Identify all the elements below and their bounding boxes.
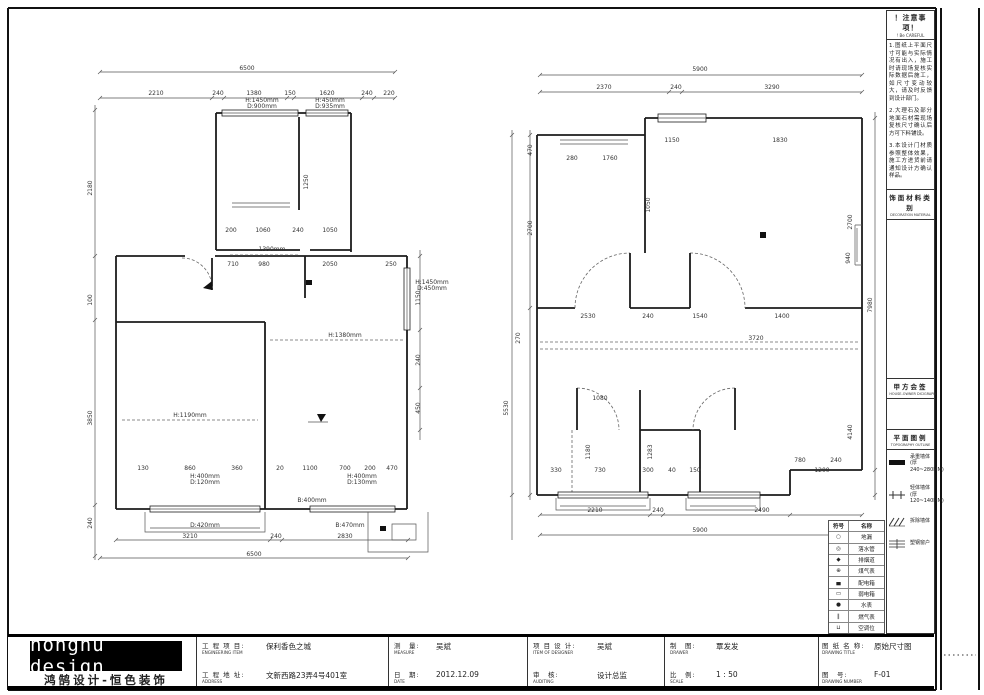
material-title-zh: 饰面材料类别 xyxy=(887,192,934,212)
floor-plan-right: 5900237024032902801760115018302700105025… xyxy=(503,66,877,540)
symbol-name: 地漏 xyxy=(849,533,884,541)
divider xyxy=(664,637,665,686)
left-balcony xyxy=(145,512,428,552)
svg-text:200: 200 xyxy=(225,227,237,234)
legend-item-light-wall: 轻体墙体(厚120~140MM) xyxy=(889,485,932,505)
drawing-title-row: 图 纸 名 称: DRAWING TITLE 原始尺寸图 xyxy=(822,640,932,655)
svg-text:300: 300 xyxy=(642,467,654,474)
svg-text:D:130mm: D:130mm xyxy=(347,479,377,486)
svg-text:D:120mm: D:120mm xyxy=(190,479,220,486)
notes-title-zh: ！注意事项！ xyxy=(887,13,934,33)
svg-text:5900: 5900 xyxy=(692,66,707,73)
svg-text:940: 940 xyxy=(845,252,852,264)
designer-row: 项 目 设 计: ITEM OF DESIGNER 吴斌 xyxy=(533,640,661,655)
note-3: 3.本设计门材质参照整体效果，施工方进货前请通知设计方确认样品。 xyxy=(889,143,932,181)
project-row: 工 程 项 目: ENGINEERING ITEM 保利香色之城 xyxy=(202,640,386,655)
svg-text:1540: 1540 xyxy=(692,313,707,320)
designer-value: 吴斌 xyxy=(597,640,612,652)
left-elevation-marker xyxy=(308,414,328,422)
svg-text:200: 200 xyxy=(364,465,376,472)
measure-date-cell: 测 量: MEASURE 吴斌 日 期: DATE 2012.12.09 xyxy=(394,640,524,684)
left-entry-door xyxy=(182,258,212,290)
symbol-table-row: ⊕煤气表 xyxy=(829,565,884,576)
symbol-name: 弱电箱 xyxy=(849,590,884,598)
svg-text:5530: 5530 xyxy=(503,400,510,415)
title-bar: honghu design 鸿鹄设计-恒色装饰 工 程 项 目: ENGINEE… xyxy=(8,634,934,690)
svg-text:D:450mm: D:450mm xyxy=(417,285,447,292)
symbol-name: 燃气表 xyxy=(849,613,884,621)
svg-text:7980: 7980 xyxy=(867,297,874,312)
svg-text:2700: 2700 xyxy=(847,214,854,229)
address-label: 工 程 地 址: ADDRESS xyxy=(202,669,266,684)
legend-item-bearing-wall: 承重墙体(厚240~280MM) xyxy=(889,454,932,474)
symbol-glyph: ⊔ xyxy=(829,623,849,633)
legend-label: 塑钢窗户 xyxy=(910,540,930,547)
svg-text:2700: 2700 xyxy=(527,220,534,235)
symbol-table-row: ◎落水管 xyxy=(829,543,884,554)
svg-text:3850: 3850 xyxy=(87,410,94,425)
drawing-number-label: 图 号: DRAWING NUMBER xyxy=(822,669,874,684)
svg-text:1200: 1200 xyxy=(814,467,829,474)
legend-item-window: 塑钢窗户 xyxy=(889,539,932,549)
left-dimension-labels: 6500221024013801501620240220H:1450mmD:90… xyxy=(87,65,449,558)
svg-text:220: 220 xyxy=(383,90,395,97)
svg-text:D:935mm: D:935mm xyxy=(315,103,345,110)
svg-text:330: 330 xyxy=(550,467,562,474)
svg-text:470: 470 xyxy=(527,144,534,156)
divider xyxy=(196,637,197,686)
material-blank-area xyxy=(887,220,934,378)
symbol-name: 煤气表 xyxy=(849,567,884,575)
audit-value: 设计总监 xyxy=(597,669,627,681)
svg-text:150: 150 xyxy=(689,467,701,474)
symbol-glyph: ∥ xyxy=(829,611,849,621)
svg-text:1150: 1150 xyxy=(664,137,679,144)
drawing-title-label: 图 纸 名 称: DRAWING TITLE xyxy=(822,640,874,655)
svg-text:980: 980 xyxy=(258,261,270,268)
svg-text:710: 710 xyxy=(227,261,239,268)
svg-text:B:400mm: B:400mm xyxy=(297,497,326,504)
symbol-glyph: ▄ xyxy=(829,577,849,587)
svg-text:270: 270 xyxy=(515,332,522,344)
svg-text:2830: 2830 xyxy=(337,533,352,540)
divider xyxy=(388,637,389,686)
symbol-table-row: ▭弱电箱 xyxy=(829,588,884,599)
company-name-cn: 鸿鹄设计-恒色装饰 xyxy=(22,672,190,688)
svg-text:860: 860 xyxy=(184,465,196,472)
svg-text:1060: 1060 xyxy=(255,227,270,234)
notes-title-en: ! Be CAREFUL xyxy=(887,33,934,38)
svg-text:150: 150 xyxy=(284,90,296,97)
sign-section-header: 甲方会签 HOUSE-OWNER DICIGRAPH xyxy=(887,378,934,399)
symbol-glyph: ● xyxy=(829,600,849,610)
scale-label: 比 例: SCALE xyxy=(670,669,716,684)
sign-title-zh: 甲方会签 xyxy=(887,381,934,391)
divider xyxy=(527,637,528,686)
svg-text:240: 240 xyxy=(292,227,304,234)
address-value: 文新西路23弄4号401室 xyxy=(266,669,347,681)
symbol-table-row: ◆排烟道 xyxy=(829,554,884,565)
drawing-sheet: { "titlebar": { "logo_en": "honghu desig… xyxy=(0,0,984,695)
project-cell: 工 程 项 目: ENGINEERING ITEM 保利香色之城 工 程 地 址… xyxy=(202,640,386,684)
svg-text:240: 240 xyxy=(87,517,94,529)
designer-audit-cell: 项 目 设 计: ITEM OF DESIGNER 吴斌 审 核: AUDITI… xyxy=(533,640,661,684)
svg-text:2210: 2210 xyxy=(587,507,602,514)
svg-text:6500: 6500 xyxy=(239,65,254,72)
symbol-glyph: ○ xyxy=(829,532,849,542)
scale-value: 1 : 50 xyxy=(716,669,738,679)
svg-text:2050: 2050 xyxy=(322,261,337,268)
address-row: 工 程 地 址: ADDRESS 文新西路23弄4号401室 xyxy=(202,669,386,684)
demolish-wall-icon xyxy=(889,517,907,527)
drawer-scale-cell: 制 图: DRAWER 覃发发 比 例: SCALE 1 : 50 xyxy=(670,640,812,684)
symbol-glyph: ◎ xyxy=(829,544,849,554)
svg-text:780: 780 xyxy=(794,457,806,464)
svg-text:1760: 1760 xyxy=(602,155,617,162)
light-wall-icon xyxy=(889,490,907,500)
svg-text:240: 240 xyxy=(270,533,282,540)
project-label: 工 程 项 目: ENGINEERING ITEM xyxy=(202,640,266,655)
scale-row: 比 例: SCALE 1 : 50 xyxy=(670,669,812,684)
notes-list: 1.图纸上平面尺寸可能与实际情况有出入，施工时请现场复核实际数据后施工，如尺寸变… xyxy=(887,40,934,189)
window-icon xyxy=(889,539,907,549)
svg-text:20: 20 xyxy=(276,465,284,472)
svg-text:D:900mm: D:900mm xyxy=(247,103,277,110)
symbol-name: 水表 xyxy=(849,601,884,609)
audit-row: 审 核: AUDITING 设计总监 xyxy=(533,669,661,684)
svg-text:1050: 1050 xyxy=(645,197,652,212)
legend-section-header: 平面图例 TOPOGRAPHY OUTLINE xyxy=(887,429,934,450)
svg-text:1400: 1400 xyxy=(774,313,789,320)
svg-text:1283: 1283 xyxy=(647,444,654,459)
svg-text:1050: 1050 xyxy=(322,227,337,234)
svg-text:40: 40 xyxy=(668,467,676,474)
svg-text:1100: 1100 xyxy=(302,465,317,472)
date-row: 日 期: DATE 2012.12.09 xyxy=(394,669,524,684)
symbol-glyph: ◆ xyxy=(829,555,849,565)
symbol-table-row: ∥燃气表 xyxy=(829,610,884,621)
measure-value: 吴斌 xyxy=(436,640,451,652)
left-main-walls xyxy=(116,256,410,531)
sign-title-en: HOUSE-OWNER DICIGRAPH xyxy=(889,391,931,396)
symbol-glyph: ⊕ xyxy=(829,566,849,576)
svg-text:240: 240 xyxy=(670,84,682,91)
symbol-name: 落水管 xyxy=(849,545,884,553)
svg-text:D:420mm: D:420mm xyxy=(190,522,220,529)
svg-text:1150: 1150 xyxy=(415,290,422,305)
svg-text:130: 130 xyxy=(137,465,149,472)
drawing-number-value: F-01 xyxy=(874,669,891,679)
svg-text:100: 100 xyxy=(87,294,94,306)
legend-title-en: TOPOGRAPHY OUTLINE xyxy=(889,442,931,447)
svg-text:2210: 2210 xyxy=(148,90,163,97)
drawing-title-value: 原始尺寸图 xyxy=(874,640,912,652)
svg-text:6500: 6500 xyxy=(246,551,261,558)
svg-text:1620: 1620 xyxy=(319,90,334,97)
material-title-en: DECORATION MATERIAL xyxy=(889,212,931,217)
bearing-wall-icon xyxy=(889,458,907,468)
svg-text:1180: 1180 xyxy=(585,444,592,459)
drawer-value: 覃发发 xyxy=(716,640,739,652)
svg-text:2490: 2490 xyxy=(754,507,769,514)
symbol-table-header: 符号名称 xyxy=(829,521,884,531)
measure-label: 测 量: MEASURE xyxy=(394,640,436,655)
svg-text:1380: 1380 xyxy=(246,90,261,97)
left-dimension-lines xyxy=(93,70,422,560)
svg-text:250: 250 xyxy=(385,261,397,268)
symbol-table: 符号名称○地漏◎落水管◆排烟道⊕煤气表▄配电箱▭弱电箱●水表∥燃气表⊔空调位 xyxy=(828,520,885,634)
drawer-row: 制 图: DRAWER 覃发发 xyxy=(670,640,812,655)
project-value: 保利香色之城 xyxy=(266,640,311,652)
svg-text:2530: 2530 xyxy=(580,313,595,320)
audit-label: 审 核: AUDITING xyxy=(533,669,597,684)
material-section-header: 饰面材料类别 DECORATION MATERIAL xyxy=(887,189,934,220)
svg-text:5900: 5900 xyxy=(692,527,707,534)
drawer-label: 制 图: DRAWER xyxy=(670,640,716,655)
floor-plan-left: 6500221024013801501620240220H:1450mmD:90… xyxy=(87,65,449,560)
svg-text:3210: 3210 xyxy=(182,533,197,540)
svg-text:360: 360 xyxy=(231,465,243,472)
drawing-title-cell: 图 纸 名 称: DRAWING TITLE 原始尺寸图 图 号: DRAWIN… xyxy=(822,640,932,684)
svg-text:280: 280 xyxy=(566,155,578,162)
svg-text:730: 730 xyxy=(594,467,606,474)
symbol-name: 空调位 xyxy=(849,624,884,632)
notes-panel: ！注意事项！ ! Be CAREFUL 1.图纸上平面尺寸可能与实际情况有出入，… xyxy=(886,10,935,634)
notes-title: ！注意事项！ ! Be CAREFUL xyxy=(887,11,934,40)
company-logo: honghu design xyxy=(30,641,182,671)
symbol-name: 排烟道 xyxy=(849,556,884,564)
svg-text:B:470mm: B:470mm xyxy=(335,522,364,529)
svg-text:240: 240 xyxy=(361,90,373,97)
svg-text:1250: 1250 xyxy=(303,174,310,189)
symbol-name: 配电箱 xyxy=(849,579,884,587)
legend-list: 承重墙体(厚240~280MM) 轻体墙体(厚120~140MM) 拆除墙体 塑… xyxy=(887,450,934,565)
svg-text:1080: 1080 xyxy=(592,395,607,402)
svg-text:1830: 1830 xyxy=(772,137,787,144)
svg-text:240: 240 xyxy=(415,354,422,366)
svg-text:240: 240 xyxy=(212,90,224,97)
svg-text:3290: 3290 xyxy=(764,84,779,91)
svg-text:H:1380mm: H:1380mm xyxy=(328,332,362,339)
right-dimension-labels: 5900237024032902801760115018302700105025… xyxy=(503,66,874,534)
symbol-table-row: ●水表 xyxy=(829,599,884,610)
date-label: 日 期: DATE xyxy=(394,669,436,684)
svg-text:3720: 3720 xyxy=(748,335,763,342)
legend-label: 轻体墙体(厚120~140MM) xyxy=(910,485,944,505)
svg-text:450: 450 xyxy=(415,402,422,414)
svg-text:700: 700 xyxy=(339,465,351,472)
symbol-table-row: ⊔空调位 xyxy=(829,622,884,633)
svg-text:2370: 2370 xyxy=(596,84,611,91)
sign-blank-area xyxy=(887,399,934,429)
symbol-table-row: ○地漏 xyxy=(829,531,884,542)
symbol-table-row: ▄配电箱 xyxy=(829,576,884,587)
measure-row: 测 量: MEASURE 吴斌 xyxy=(394,640,524,655)
svg-text:240: 240 xyxy=(652,507,664,514)
right-doors xyxy=(575,253,745,430)
legend-label: 拆除墙体 xyxy=(910,518,930,525)
symbol-glyph: ▭ xyxy=(829,589,849,599)
svg-text:4140: 4140 xyxy=(847,424,854,439)
designer-label: 项 目 设 计: ITEM OF DESIGNER xyxy=(533,640,597,655)
divider xyxy=(818,637,819,686)
svg-text:470: 470 xyxy=(386,465,398,472)
svg-text:240: 240 xyxy=(830,457,842,464)
svg-text:240: 240 xyxy=(642,313,654,320)
date-value: 2012.12.09 xyxy=(436,669,479,679)
legend-item-demolish-wall: 拆除墙体 xyxy=(889,517,932,527)
symbol-glyph: 符号 xyxy=(829,521,849,531)
legend-title-zh: 平面图例 xyxy=(887,432,934,442)
note-2: 2.大理石及部分地面石材需现场复核尺寸确认后方可下料铺设。 xyxy=(889,108,932,138)
drawing-number-row: 图 号: DRAWING NUMBER F-01 xyxy=(822,669,932,684)
symbol-name: 名称 xyxy=(849,522,884,530)
legend-label: 承重墙体(厚240~280MM) xyxy=(910,454,944,474)
svg-text:1390mm: 1390mm xyxy=(259,246,286,253)
svg-text:2180: 2180 xyxy=(87,180,94,195)
svg-text:H:1190mm: H:1190mm xyxy=(173,412,207,419)
note-1: 1.图纸上平面尺寸可能与实际情况有出入，施工时请现场复核实际数据后施工，如尺寸变… xyxy=(889,43,932,103)
